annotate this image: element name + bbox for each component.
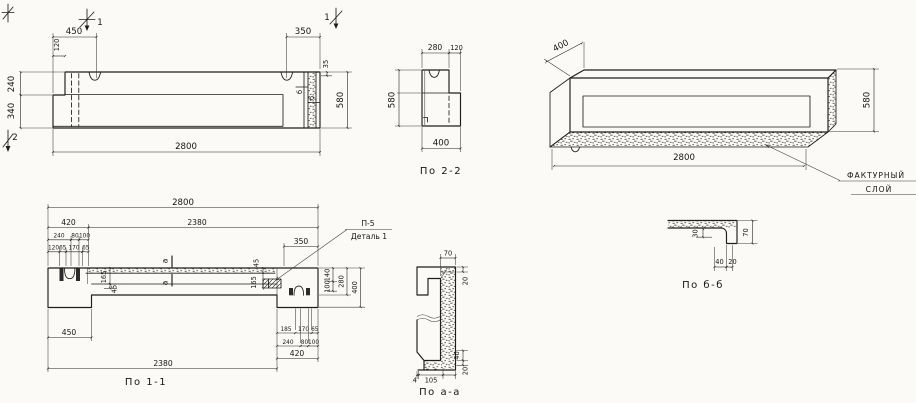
dim-120-label: 120 (450, 44, 463, 52)
dim-350-label: 350 (294, 237, 309, 246)
dim-240-label: 240 (7, 76, 17, 92)
elevation-inner-lines (53, 95, 283, 127)
dim-580-label: 580 (863, 92, 873, 108)
dim-185-label: 185 (280, 327, 291, 333)
dim-280-label: 280 (428, 43, 443, 52)
dim-350-label: 350 (295, 27, 311, 37)
dim-120-label: 120 (48, 246, 59, 252)
plan-title: По 1-1 (125, 377, 167, 388)
dim-420-top-label: 420 (61, 218, 76, 227)
dim-70-label: 70 (444, 249, 452, 257)
cut-label-b2: б (308, 96, 316, 100)
plan-left-end-keys (60, 269, 81, 282)
dim-2380-top-label: 2380 (187, 218, 206, 227)
dim-280-label: 280 (338, 275, 346, 288)
dim-170-bot-label: 170 (298, 327, 309, 333)
view-section-a-a: 70 20 40 20 4 105 По а-а (413, 249, 470, 398)
axon-inner-recess (583, 96, 810, 127)
detail-tag-label: П-5 (361, 219, 374, 228)
section-marker-2-top (2, 4, 14, 22)
dim-2380-bot-label: 2380 (153, 359, 172, 368)
view-axonometric: 400 580 2800 ФАКТУРНЫЙ СЛОЙ (544, 38, 916, 195)
sectionBB-title: По б-б (682, 280, 724, 291)
dim-450-label: 450 (62, 328, 77, 337)
dim-100-bot-label: 100 (308, 340, 319, 346)
axon-bottom-textured-band (550, 132, 828, 147)
dim-420-bot-label: 420 (290, 349, 305, 358)
dim-105-label: 105 (425, 377, 438, 385)
view-plan-1-1: а а 2800 420 2 (48, 198, 392, 388)
dim-35-label: 35 (322, 60, 330, 68)
sectionBB-texture-band (668, 221, 737, 229)
dim-65b-label: 65 (82, 246, 90, 252)
dim-165-right-label: 165 (250, 276, 258, 289)
cut-label-b1: б (296, 90, 304, 94)
view-section-b-b: 30 70 40 20 По б-б (668, 221, 758, 292)
dim-140-label: 140 (324, 269, 332, 282)
view-elevation: б б 450 350 120 240 340 35 580 2800 1 (2, 4, 352, 156)
dim-45-right-label: 45 (253, 259, 261, 267)
section-marker-2-bottom: 2 (3, 130, 18, 152)
dim-2800-label: 2800 (175, 142, 197, 152)
sectionAA-title: По а-а (419, 387, 461, 398)
dim-80-top-label: 80 (71, 234, 79, 240)
callout-leader-line (766, 145, 840, 181)
detail-leader-line (276, 230, 347, 281)
elevation-outline (53, 72, 320, 128)
dim-400-label: 400 (351, 281, 359, 294)
dim-400-label: 400 (433, 139, 449, 149)
dim-20-bot-label: 20 (462, 367, 470, 375)
dim-2800-label: 2800 (172, 198, 194, 208)
sectionAA-break-lines (417, 315, 440, 322)
dim-30-label: 30 (692, 229, 700, 237)
cut-label-a1: а (161, 259, 170, 264)
plan-textured-strip (86, 269, 275, 274)
plan-right-end-keys (289, 286, 310, 295)
dim-4-label: 4 (413, 377, 417, 385)
dim-65-bot-label: 65 (311, 327, 319, 333)
dim-400-label: 400 (551, 38, 570, 55)
detail-name-label: Деталь 1 (351, 232, 387, 241)
dim-450-label: 450 (66, 27, 82, 37)
section22-extension-lines (395, 49, 461, 152)
drawing-canvas: б б 450 350 120 240 340 35 580 2800 1 (0, 0, 916, 403)
dim-2800-label: 2800 (673, 153, 695, 163)
dim-45-left-label: 45 (111, 285, 119, 293)
dim-240-bot-label: 240 (282, 340, 293, 346)
axon-band-notch (571, 147, 580, 152)
cut-label-a2: а (161, 281, 170, 286)
detail-callout: П-5 Деталь 1 (276, 219, 392, 280)
dim-20-top-label: 20 (462, 277, 470, 285)
section-marker-1-left: 1 (79, 9, 103, 31)
dim-165-left-label: 165 (100, 271, 108, 284)
dim-100-top-label: 100 (79, 234, 90, 240)
dim-40-label: 40 (453, 351, 461, 359)
plan-embedded-detail (263, 279, 281, 288)
dim-170-top-label: 170 (68, 246, 79, 252)
dim-40-label: 40 (715, 258, 723, 266)
elevation-top-notches (89, 72, 293, 80)
technical-drawing-sheet: б б 450 350 120 240 340 35 580 2800 1 (0, 0, 916, 403)
section22-top-notch (429, 70, 439, 77)
marker-1-right-label: 1 (324, 13, 329, 23)
dim-70-label: 70 (742, 228, 750, 236)
dim-240-top-label: 240 (53, 234, 64, 240)
dim-100-right-label: 100 (324, 280, 332, 293)
elevation-hidden-lines (72, 74, 79, 127)
axon-body-lines (570, 70, 836, 132)
marker-1-left-label: 1 (97, 18, 102, 28)
view-section-2-2: 280 120 580 400 По 2-2 (388, 43, 463, 177)
textured-layer-callout: ФАКТУРНЫЙ СЛОЙ (766, 145, 916, 195)
section22-corner-mark (424, 118, 428, 123)
dim-580-label: 580 (388, 92, 398, 108)
axon-end-face (828, 70, 836, 132)
dim-20-label: 20 (728, 258, 736, 266)
callout-text-line2: СЛОЙ (866, 185, 893, 194)
marker-2-label: 2 (12, 133, 17, 143)
dim-120-label: 120 (53, 39, 61, 52)
dim-340-label: 340 (7, 103, 17, 119)
section-marker-1-right: 1 (324, 8, 342, 29)
sectionAA-foot-texture (425, 362, 441, 370)
dim-580-label: 580 (336, 92, 346, 108)
callout-text-line1: ФАКТУРНЫЙ (847, 171, 905, 180)
dim-65a-label: 65 (59, 246, 67, 252)
section22-title: По 2-2 (420, 166, 462, 177)
